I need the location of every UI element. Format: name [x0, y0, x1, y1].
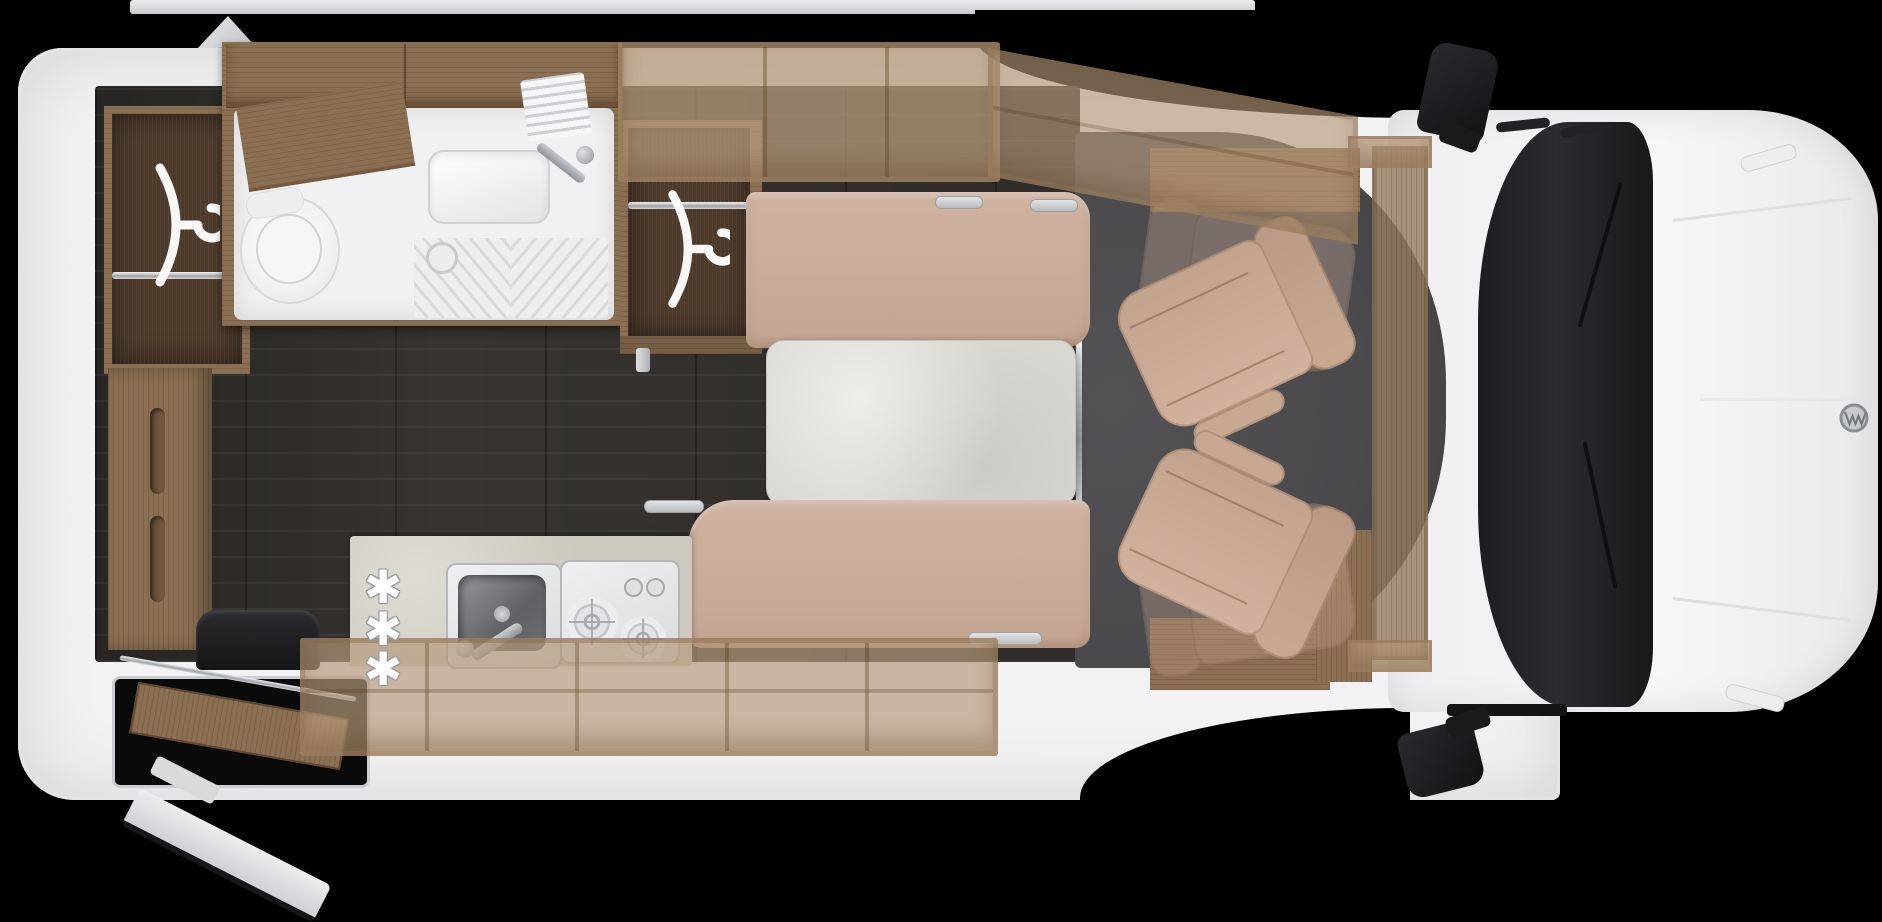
clothes-hanger-icon — [128, 162, 220, 288]
hob-knob — [646, 578, 665, 597]
bed-panel-cap — [1348, 136, 1432, 168]
floorplan-stage: ✱ ✱ ✱ — [0, 0, 1882, 922]
drain-grooves — [510, 238, 608, 318]
bottom-bench — [688, 500, 1090, 648]
drain-cap — [426, 242, 458, 274]
overhead-cabinet-top — [618, 42, 1000, 182]
table-bracket — [644, 500, 704, 513]
toilet-lid — [256, 214, 322, 284]
sink-drain — [494, 606, 510, 622]
bench-latch — [1030, 199, 1078, 212]
top-bench — [746, 192, 1090, 348]
wardrobe-fitting — [636, 348, 650, 372]
bed-panel-cap — [1348, 640, 1432, 672]
cab-threshold — [1076, 336, 1082, 506]
open-door-leaf — [121, 788, 332, 922]
bathroom-vent-grille — [520, 72, 592, 142]
dinette-table — [766, 340, 1076, 506]
hood-crease — [1700, 398, 1860, 401]
option-marker: ✱ — [352, 646, 414, 692]
cabinet-handle-groove — [150, 408, 165, 494]
vw-badge-icon — [1838, 402, 1870, 434]
hob-knob — [624, 578, 643, 597]
drop-down-bed-panel — [1372, 146, 1428, 660]
bench-latch — [935, 196, 983, 209]
washbasin — [428, 150, 550, 224]
clothes-hanger-icon — [642, 188, 730, 310]
faucet-head — [576, 146, 594, 164]
cabinet-handle-groove — [150, 516, 165, 602]
windshield — [1478, 122, 1653, 707]
